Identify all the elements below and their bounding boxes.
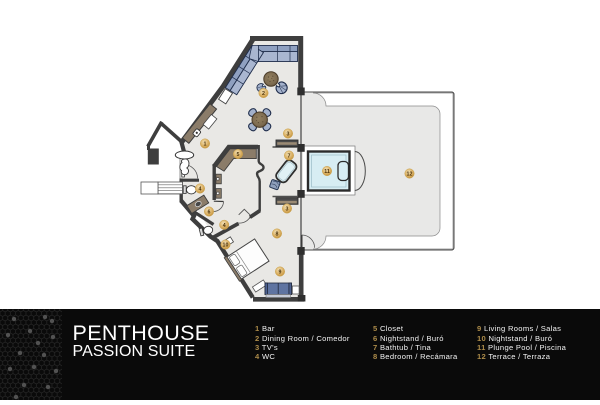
svg-text:5: 5 — [237, 152, 240, 158]
svg-text:2: 2 — [262, 91, 265, 97]
svg-text:4: 4 — [223, 223, 226, 229]
svg-text:7: 7 — [288, 154, 291, 160]
svg-text:11: 11 — [324, 169, 330, 175]
svg-text:4: 4 — [199, 187, 202, 193]
svg-text:6: 6 — [208, 210, 211, 216]
svg-text:8: 8 — [276, 232, 279, 238]
svg-text:12: 12 — [407, 172, 413, 178]
svg-text:10: 10 — [223, 243, 229, 249]
svg-text:3: 3 — [287, 132, 290, 138]
svg-text:1: 1 — [204, 142, 207, 148]
svg-text:3: 3 — [286, 207, 289, 213]
svg-text:9: 9 — [279, 270, 282, 276]
